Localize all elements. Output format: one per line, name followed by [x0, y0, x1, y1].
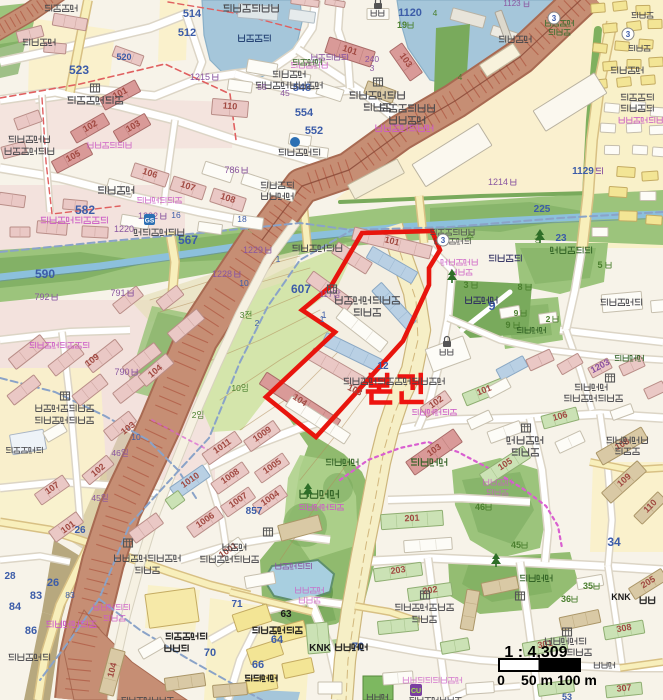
svg-text:582: 582	[75, 203, 95, 217]
svg-text:1220: 1220	[114, 224, 134, 234]
svg-text:1: 1	[276, 254, 281, 264]
svg-text:590: 590	[35, 267, 55, 281]
svg-text:CU: CU	[411, 688, 421, 695]
svg-text:18: 18	[237, 214, 247, 224]
svg-text:1129: 1129	[572, 166, 594, 177]
svg-text:수: 수	[466, 232, 474, 242]
svg-text:53: 53	[562, 692, 572, 700]
svg-text:45: 45	[511, 540, 521, 550]
svg-text:26: 26	[47, 577, 59, 589]
svg-text:110: 110	[222, 100, 237, 111]
svg-text:117잠: 117잠	[319, 289, 341, 299]
svg-text:19: 19	[397, 20, 407, 30]
svg-text:201: 201	[404, 513, 420, 524]
svg-text:16: 16	[171, 210, 181, 220]
svg-text:8: 8	[517, 282, 522, 292]
svg-text:1229: 1229	[243, 245, 263, 255]
svg-text:70: 70	[204, 647, 216, 659]
svg-text:786: 786	[224, 165, 239, 175]
svg-text:64: 64	[271, 634, 284, 646]
svg-text:5: 5	[597, 260, 602, 270]
svg-text:791: 791	[110, 288, 125, 298]
svg-text:3: 3	[552, 14, 557, 23]
svg-text:607: 607	[291, 282, 311, 296]
svg-text:34: 34	[607, 535, 621, 549]
svg-text:46일: 46일	[111, 448, 128, 458]
svg-text:790: 790	[114, 367, 129, 377]
svg-text:3: 3	[626, 30, 631, 39]
svg-text:792: 792	[34, 292, 49, 302]
svg-text:100 m: 100 m	[557, 672, 597, 688]
svg-text:50 m: 50 m	[521, 672, 553, 688]
svg-text:9: 9	[514, 308, 519, 318]
svg-text:3전: 3전	[240, 310, 253, 320]
svg-text:857: 857	[246, 506, 263, 517]
svg-text:66: 66	[252, 659, 264, 671]
svg-text:23: 23	[555, 233, 567, 244]
svg-text:10: 10	[131, 432, 141, 442]
svg-text:307: 307	[616, 682, 632, 694]
svg-text:520: 520	[116, 52, 131, 62]
svg-text:3: 3	[463, 280, 468, 290]
svg-text:10: 10	[239, 278, 249, 288]
svg-text:9: 9	[488, 298, 495, 313]
svg-text:552: 552	[305, 125, 323, 137]
svg-text:225: 225	[534, 204, 551, 215]
svg-text:3: 3	[441, 236, 446, 245]
svg-text:203: 203	[390, 564, 406, 576]
svg-text:512: 512	[178, 27, 196, 39]
svg-text:84: 84	[9, 601, 22, 613]
svg-text:2: 2	[255, 318, 260, 328]
svg-text:514: 514	[183, 8, 202, 20]
svg-text:1123: 1123	[503, 0, 521, 8]
svg-text:1120: 1120	[398, 7, 422, 19]
svg-text:GS: GS	[145, 218, 155, 225]
svg-text:35: 35	[583, 581, 593, 591]
svg-text:83: 83	[30, 590, 42, 602]
svg-text:55: 55	[257, 82, 267, 92]
svg-text:4: 4	[433, 8, 438, 18]
svg-text:71: 71	[231, 599, 243, 610]
svg-text:9: 9	[505, 320, 510, 330]
svg-text:0: 0	[497, 672, 505, 688]
svg-text:10임: 10임	[231, 383, 248, 393]
svg-text:46: 46	[475, 502, 485, 512]
svg-text:86: 86	[25, 625, 37, 637]
svg-text:45일: 45일	[91, 493, 108, 503]
svg-text:KNK: KNK	[309, 643, 331, 654]
svg-text:1228: 1228	[212, 269, 232, 279]
svg-text:1: 1	[321, 310, 326, 320]
svg-text:45: 45	[280, 88, 290, 98]
svg-text:3: 3	[370, 63, 375, 73]
svg-text:83: 83	[65, 590, 75, 600]
svg-text:63: 63	[280, 609, 292, 620]
svg-text:2: 2	[546, 314, 551, 324]
svg-text:2임: 2임	[192, 410, 205, 420]
svg-text:523: 523	[69, 63, 89, 77]
svg-text:554: 554	[295, 107, 314, 119]
svg-text:1215: 1215	[190, 72, 210, 82]
svg-text:1214: 1214	[488, 177, 508, 187]
svg-text:4: 4	[458, 72, 463, 82]
svg-text:28: 28	[4, 571, 16, 582]
svg-text:12: 12	[377, 361, 389, 372]
svg-text:36: 36	[561, 594, 571, 604]
svg-text:KNK: KNK	[611, 592, 631, 602]
